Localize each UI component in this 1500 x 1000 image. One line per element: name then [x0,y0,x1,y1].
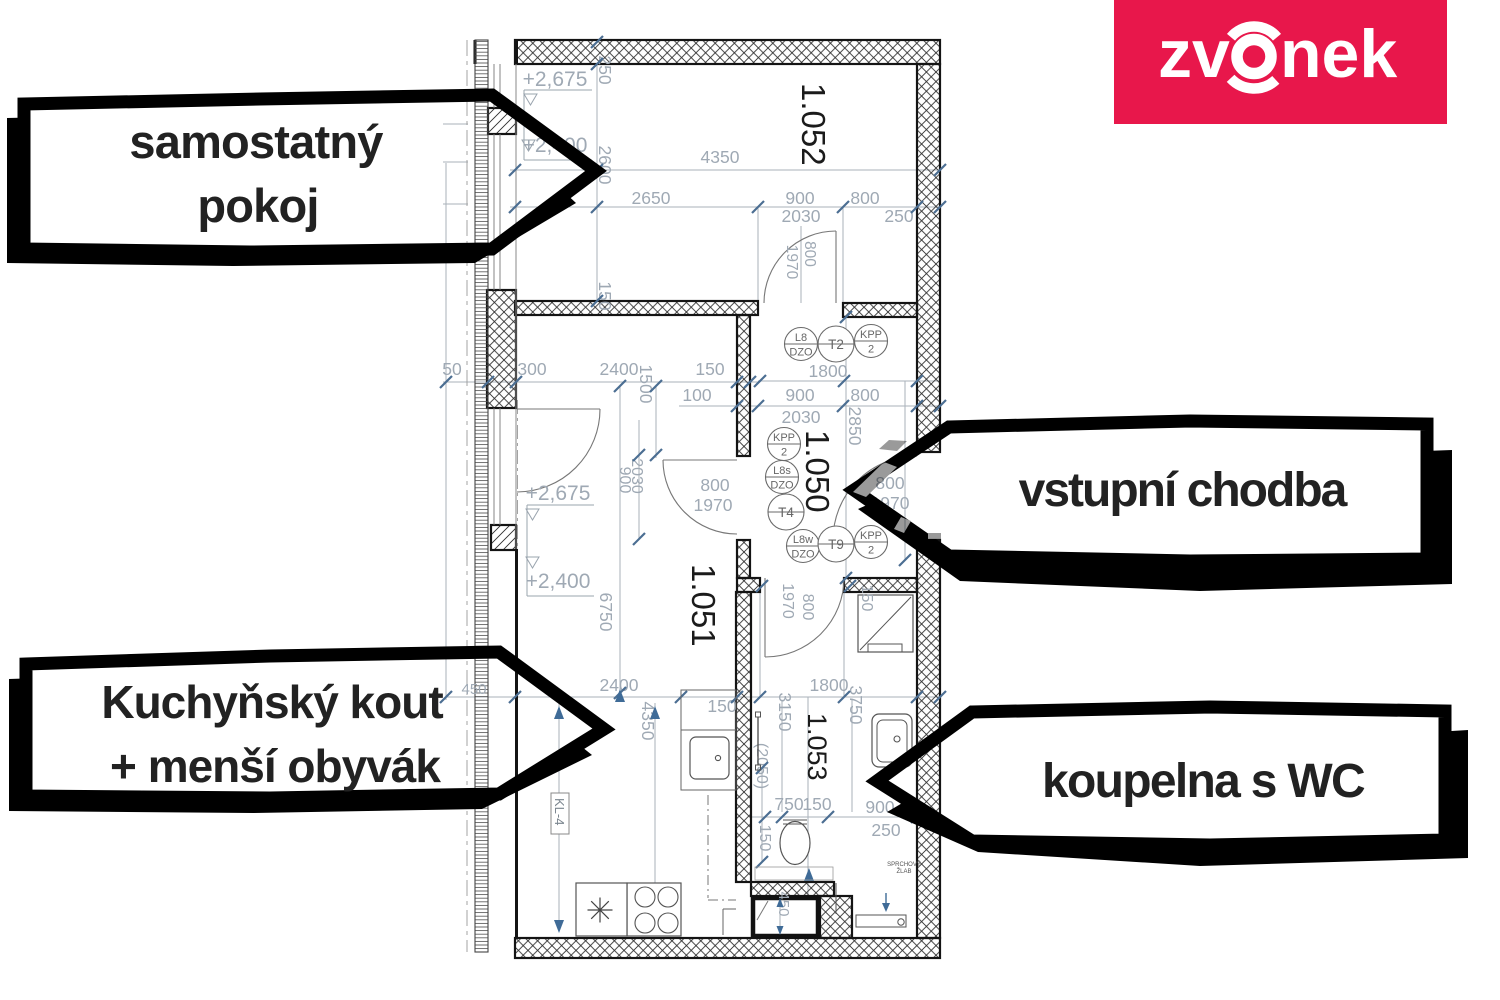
svg-text:250: 250 [884,206,913,226]
svg-text:2600: 2600 [595,146,615,185]
svg-text:800: 800 [850,188,879,208]
svg-text:1500: 1500 [636,365,656,404]
svg-text:DZO: DZO [770,480,794,492]
svg-text:+ menší obyvák: + menší obyvák [110,740,441,792]
svg-text:800: 800 [850,385,879,405]
svg-text:1800: 1800 [809,361,848,381]
svg-text:nek: nek [1280,16,1397,92]
svg-text:2: 2 [868,545,874,557]
svg-text:2030: 2030 [782,407,821,427]
svg-text:L8: L8 [795,332,807,344]
svg-text:T9: T9 [828,537,844,552]
svg-text:samostatný: samostatný [129,115,383,168]
svg-text:T2: T2 [828,337,844,352]
svg-text:ŽLAB: ŽLAB [896,867,911,875]
svg-text:450: 450 [461,681,486,698]
svg-text:SPRCHOVÝ: SPRCHOVÝ [887,861,921,868]
svg-text:KPP: KPP [773,432,795,444]
svg-text:900: 900 [785,188,814,208]
svg-text:KPP: KPP [860,329,882,341]
svg-text:2030: 2030 [782,206,821,226]
svg-text:150: 150 [595,281,615,310]
svg-text:1970: 1970 [694,495,733,515]
svg-text:1970: 1970 [871,493,910,513]
svg-text:+2,400: +2,400 [526,570,591,593]
svg-text:DZO: DZO [789,347,813,359]
svg-text:pokoj: pokoj [197,179,318,232]
svg-text:koupelna s WC: koupelna s WC [1042,755,1365,808]
svg-text:3150: 3150 [775,693,795,732]
svg-text:800: 800 [801,241,818,267]
svg-text:800: 800 [799,594,816,621]
svg-text:450: 450 [775,891,792,916]
svg-text:1970: 1970 [783,245,800,280]
svg-text:150: 150 [756,825,773,852]
svg-text:150: 150 [858,585,875,612]
svg-text:Kuchyňský kout: Kuchyňský kout [101,676,443,728]
svg-text:250: 250 [595,55,615,84]
svg-text:900: 900 [865,797,894,817]
svg-text:150: 150 [695,359,724,379]
svg-text:1970: 1970 [779,583,796,619]
svg-text:T4: T4 [778,505,794,520]
svg-text:2030: 2030 [628,458,645,494]
svg-text:750: 750 [774,794,803,814]
svg-text:+2,675: +2,675 [523,68,588,91]
svg-text:150: 150 [802,794,831,814]
svg-text:KPP: KPP [860,530,882,542]
svg-text:2: 2 [868,344,874,356]
svg-text:800: 800 [875,473,904,493]
svg-text:L8w: L8w [793,534,813,546]
svg-text:100: 100 [682,385,711,405]
svg-text:KL-4: KL-4 [552,798,567,825]
svg-text:50: 50 [442,359,462,379]
svg-text:900: 900 [785,385,814,405]
svg-text:2650: 2650 [632,188,671,208]
svg-text:1.051: 1.051 [685,564,722,647]
svg-text:L8s: L8s [773,465,791,477]
svg-text:1.053: 1.053 [802,713,832,781]
svg-text:vstupní chodba: vstupní chodba [1019,464,1348,517]
svg-text:1800: 1800 [810,675,849,695]
svg-text:1.052: 1.052 [795,83,832,166]
svg-text:150: 150 [707,696,736,716]
svg-text:2: 2 [781,447,787,459]
svg-text:800: 800 [700,475,729,495]
svg-text:1.050: 1.050 [799,430,836,513]
svg-text:DZO: DZO [791,549,815,561]
svg-text:+2,675: +2,675 [526,482,591,505]
svg-text:250: 250 [871,820,900,840]
svg-text:zv: zv [1158,16,1230,92]
svg-text:6750: 6750 [596,593,616,632]
svg-text:2400: 2400 [600,359,639,379]
svg-text:2850: 2850 [845,407,865,446]
svg-text:4350: 4350 [701,147,740,167]
